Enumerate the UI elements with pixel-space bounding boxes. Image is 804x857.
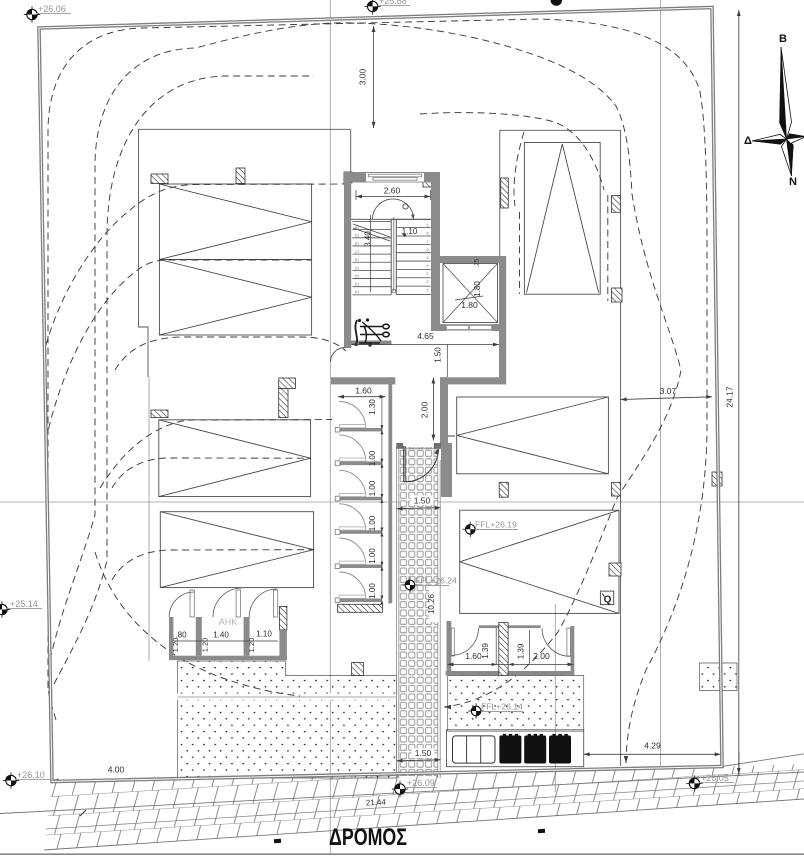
svg-text:+26.09: +26.09 <box>407 778 435 788</box>
svg-text:1.20: 1.20 <box>201 638 210 653</box>
svg-text:+25.68: +25.68 <box>379 0 407 6</box>
svg-text:AHK: AHK <box>219 617 238 627</box>
svg-text:FFL+26.24: FFL+26.24 <box>415 576 457 586</box>
svg-text:1.80: 1.80 <box>461 300 478 310</box>
svg-text:1.30: 1.30 <box>368 399 377 415</box>
svg-text:+25.14: +25.14 <box>10 599 38 609</box>
svg-text:1.20: 1.20 <box>171 638 180 653</box>
svg-text:ΔΡΟΜΟΣ: ΔΡΟΜΟΣ <box>329 824 407 851</box>
svg-text:18: 18 <box>354 241 359 246</box>
svg-text:10.26: 10.26 <box>427 593 436 614</box>
svg-text:FFL+26.19: FFL+26.19 <box>475 520 517 530</box>
svg-text:4.29: 4.29 <box>644 741 661 751</box>
svg-text:N: N <box>789 176 797 188</box>
svg-text:3.00: 3.00 <box>358 68 368 85</box>
svg-text:1.40: 1.40 <box>213 631 229 640</box>
svg-text:1.10: 1.10 <box>256 630 272 639</box>
svg-text:FFL+26.14: FFL+26.14 <box>481 702 523 712</box>
svg-text:3.07: 3.07 <box>660 386 677 396</box>
svg-text:1.00: 1.00 <box>368 450 377 466</box>
svg-text:13: 13 <box>354 282 359 287</box>
svg-text:1.60: 1.60 <box>465 651 482 661</box>
svg-text:1.00: 1.00 <box>368 480 377 496</box>
svg-text:2.00: 2.00 <box>420 401 430 418</box>
svg-text:16: 16 <box>354 258 359 263</box>
svg-text:+26.10: +26.10 <box>17 770 45 780</box>
svg-text:+26.05: +26.05 <box>701 773 729 783</box>
svg-text:1.00: 1.00 <box>368 548 377 564</box>
svg-text:14: 14 <box>354 274 359 279</box>
svg-text:1.00: 1.00 <box>368 583 377 599</box>
svg-text:Δ: Δ <box>744 135 752 147</box>
svg-text:1.50: 1.50 <box>415 748 432 758</box>
svg-text:1.39: 1.39 <box>481 643 490 659</box>
svg-text:20: 20 <box>354 225 359 230</box>
svg-text:15: 15 <box>354 266 359 271</box>
svg-text:24.17: 24.17 <box>725 386 735 408</box>
svg-text:1.39: 1.39 <box>517 643 526 659</box>
svg-text:1.50: 1.50 <box>414 496 431 506</box>
svg-text:12: 12 <box>354 290 359 295</box>
svg-text:4.00: 4.00 <box>108 765 125 775</box>
svg-text:1.00: 1.00 <box>368 515 377 531</box>
svg-text:2.00: 2.00 <box>533 651 550 661</box>
svg-text:1.60: 1.60 <box>355 386 372 396</box>
svg-text:3.40: 3.40 <box>364 231 373 247</box>
svg-text:17: 17 <box>354 249 359 254</box>
svg-text:B: B <box>779 33 787 45</box>
svg-text:1.80: 1.80 <box>473 281 482 297</box>
svg-text:+26.06: +26.06 <box>38 4 66 14</box>
svg-text:4.65: 4.65 <box>417 331 434 341</box>
svg-text:.25: .25 <box>475 258 481 267</box>
svg-text:1.50: 1.50 <box>434 347 443 363</box>
svg-text:Q: Q <box>604 595 612 606</box>
svg-text:2.60: 2.60 <box>384 186 401 196</box>
svg-text:19: 19 <box>354 233 359 238</box>
svg-text:21.44: 21.44 <box>366 797 387 807</box>
svg-text:1.20: 1.20 <box>247 638 256 653</box>
